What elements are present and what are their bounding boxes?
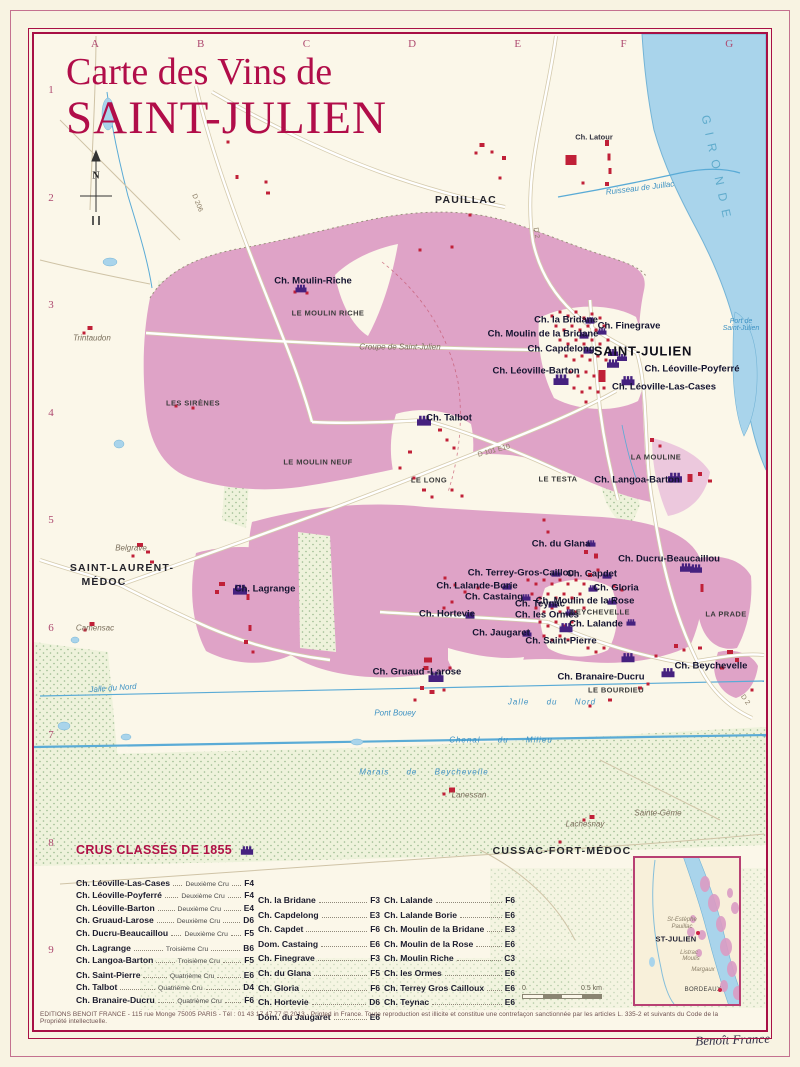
wine-map-poster: Carte des Vins de SAINT-JULIEN ABCDEFG12… bbox=[0, 0, 800, 1067]
map-frame-border bbox=[32, 32, 768, 1032]
